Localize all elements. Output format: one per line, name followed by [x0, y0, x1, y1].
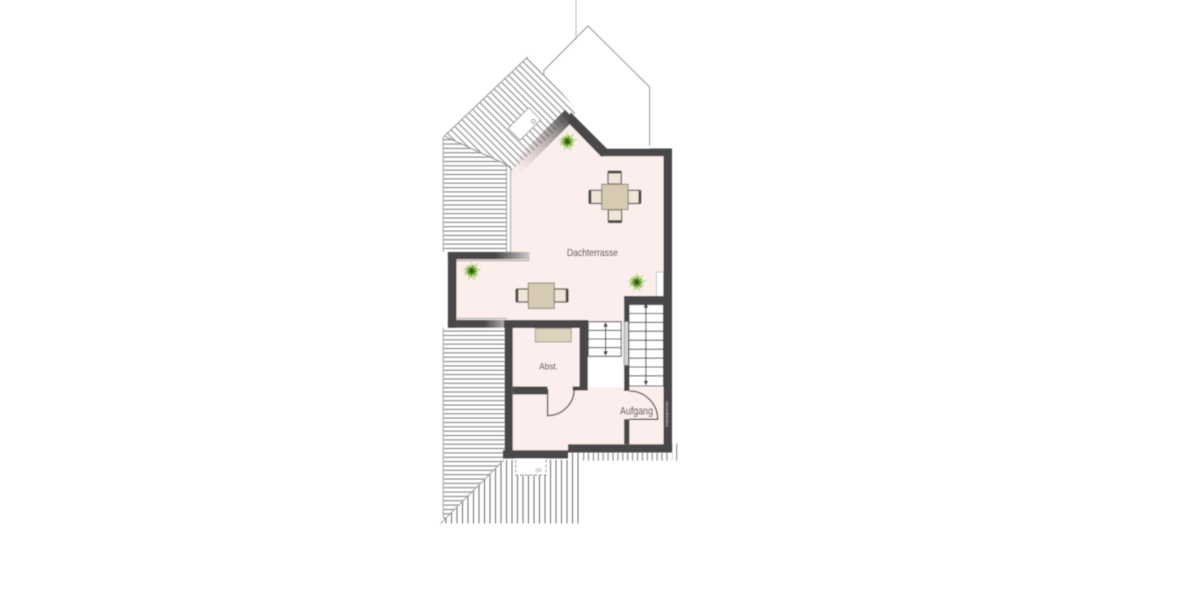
svg-text:Aufgang: Aufgang — [620, 406, 653, 418]
svg-text:Abst.: Abst. — [539, 362, 558, 372]
svg-text:DF: DF — [536, 469, 543, 475]
svg-text:Maßstabsleiste: Maßstabsleiste — [664, 400, 669, 427]
svg-text:Dachterrasse: Dachterrasse — [567, 247, 618, 259]
